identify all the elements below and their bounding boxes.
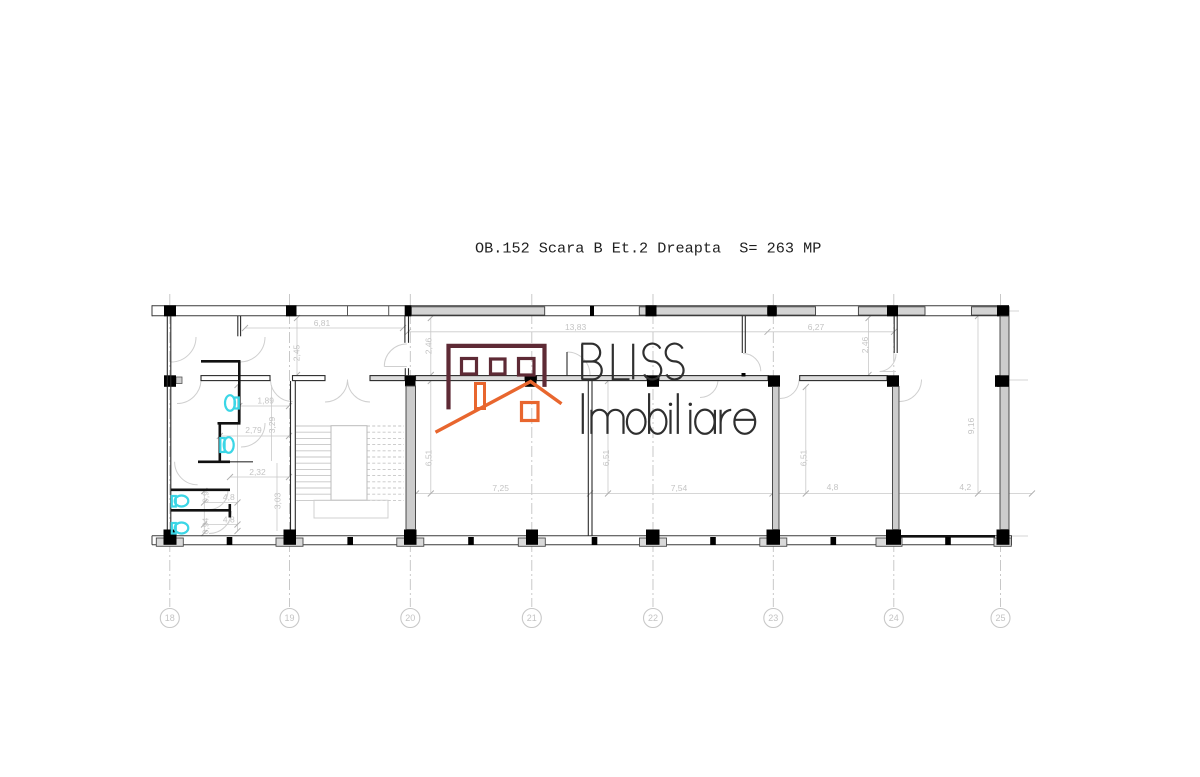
svg-text:2,46: 2,46 — [424, 337, 434, 354]
svg-text:1,89: 1,89 — [257, 396, 274, 406]
svg-text:3,29: 3,29 — [267, 416, 277, 433]
svg-text:23: 23 — [768, 613, 778, 623]
svg-text:21: 21 — [527, 613, 537, 623]
svg-text:7,54: 7,54 — [671, 483, 688, 493]
svg-text:7,25: 7,25 — [492, 483, 509, 493]
svg-text:25: 25 — [995, 613, 1005, 623]
svg-text:2,46: 2,46 — [860, 336, 870, 353]
svg-text:6,27: 6,27 — [808, 322, 825, 332]
svg-text:24: 24 — [889, 613, 899, 623]
svg-text:2,79: 2,79 — [245, 425, 262, 435]
svg-text:3,03: 3,03 — [273, 492, 283, 509]
svg-text:6,51: 6,51 — [601, 449, 611, 466]
svg-text:18: 18 — [165, 613, 175, 623]
svg-text:20: 20 — [405, 613, 415, 623]
svg-text:OB.152 Scara B Et.2 Dreapta S: OB.152 Scara B Et.2 Dreapta S= 263 MP — [475, 240, 821, 258]
svg-text:4,8: 4,8 — [827, 482, 839, 492]
svg-text:22: 22 — [648, 613, 658, 623]
svg-text:2,45: 2,45 — [292, 344, 302, 361]
svg-text:6,51: 6,51 — [799, 449, 809, 466]
svg-text:13,83: 13,83 — [565, 322, 587, 332]
svg-text:4,2: 4,2 — [959, 482, 971, 492]
svg-text:6,81: 6,81 — [314, 318, 331, 328]
svg-text:6,51: 6,51 — [424, 449, 434, 466]
svg-text:19: 19 — [284, 613, 294, 623]
svg-text:2,32: 2,32 — [249, 467, 266, 477]
svg-text:9,16: 9,16 — [966, 417, 976, 434]
